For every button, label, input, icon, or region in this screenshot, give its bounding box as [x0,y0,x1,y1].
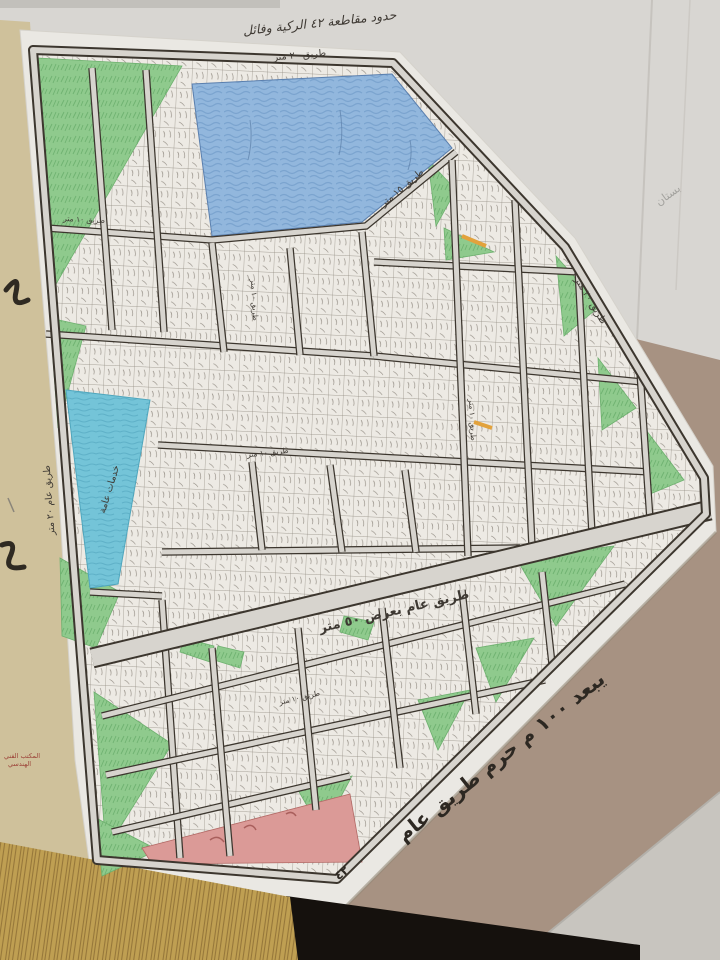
photo-edge-shadow [0,0,280,8]
stamp-text-line2: الهندسي [8,760,31,768]
internal-street [90,592,162,596]
scene: بستان المكتب الفني الهندسي [0,0,720,960]
photo-canvas: بستان المكتب الفني الهندسي [0,0,720,960]
stamp-text-line1: المكتب الفني [4,752,40,760]
